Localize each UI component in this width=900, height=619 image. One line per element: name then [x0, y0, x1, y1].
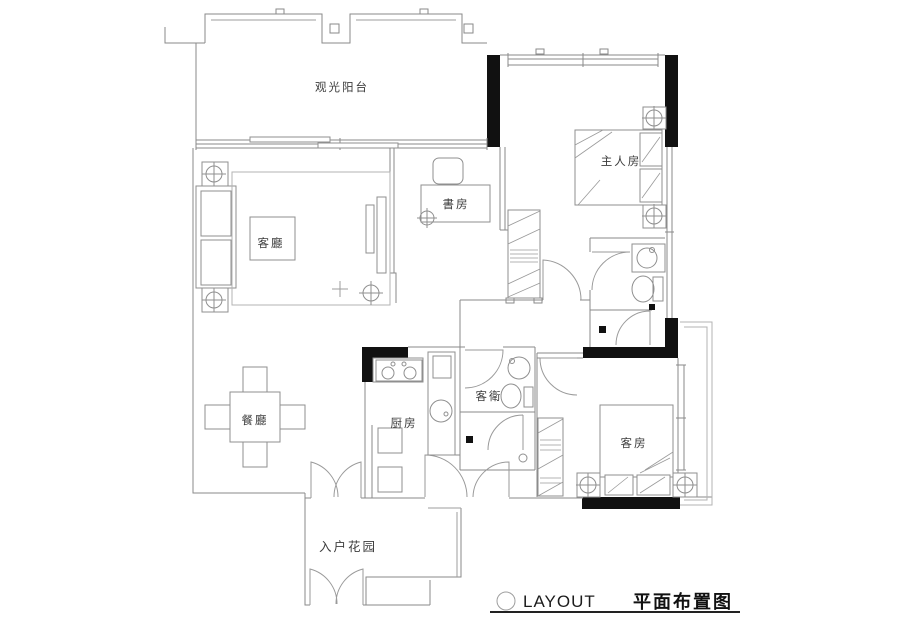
title-circle-icon	[497, 592, 515, 610]
master-bath-door	[592, 252, 630, 290]
guest-room-door	[540, 358, 577, 395]
master-shower-door	[616, 311, 650, 345]
label-entry-garden: 入户花园	[319, 539, 377, 554]
title-block: LAYOUT 平面布置图	[490, 591, 740, 612]
study-chair	[433, 158, 463, 184]
sofa	[196, 186, 236, 288]
dining-chair	[205, 405, 230, 429]
balcony-top-wall	[205, 14, 487, 43]
window-guestroom	[676, 365, 686, 470]
floor-plan-page: 观光阳台 主人房 書房 客廳 餐廳 厨房 客衛 客房 入户花园 LAYOUT 平…	[0, 0, 900, 619]
wall-bath-right	[665, 318, 678, 358]
kitchen-faucet	[444, 412, 448, 416]
label-study: 書房	[443, 197, 470, 211]
title-chinese: 平面布置图	[633, 591, 733, 612]
guest-shower-door	[488, 415, 523, 450]
balcony-tick	[420, 9, 428, 14]
burner	[382, 367, 394, 379]
gbath-box	[460, 347, 535, 470]
guestroom-top	[537, 353, 583, 358]
balcony-tick	[276, 9, 284, 14]
garden-step-inner	[428, 508, 461, 577]
kitchen-left-wall	[365, 382, 372, 498]
tv	[366, 205, 374, 253]
dining-chair	[243, 442, 267, 467]
label-dining-room: 餐廳	[242, 413, 269, 427]
wall-guestroom-bottom	[582, 497, 680, 509]
wall-master-left	[487, 55, 500, 147]
guest-bath-door	[465, 350, 503, 388]
guest-shower-head	[466, 436, 473, 443]
kitchen-chair	[378, 467, 402, 492]
burner-knob	[391, 362, 395, 366]
dining-chair	[280, 405, 305, 429]
label-guest-bathroom: 客衛	[476, 389, 503, 403]
label-master-bedroom: 主人房	[601, 155, 642, 168]
wall-master-right	[665, 55, 678, 147]
main-entry-door	[473, 462, 509, 497]
floor-plan-drawing: 观光阳台 主人房 書房 客廳 餐廳 厨房 客衛 客房 入户花园 LAYOUT 平…	[0, 0, 900, 619]
label-balcony: 观光阳台	[315, 80, 369, 94]
wall-bath-bottom	[583, 347, 678, 358]
guest-toilet-tank	[524, 387, 533, 407]
master-tick	[600, 49, 608, 54]
dining-chair	[243, 367, 267, 392]
shower-head	[599, 326, 606, 333]
burner-knob	[402, 362, 406, 366]
burner	[404, 367, 416, 379]
garden-south-door	[310, 569, 337, 605]
toilet	[632, 276, 654, 302]
light-symbol	[359, 281, 383, 305]
master-study-wall	[500, 147, 505, 230]
sliding-door-panel	[250, 137, 330, 142]
kitchen-sink	[430, 400, 452, 422]
garden-south-door	[336, 569, 363, 605]
master-east-wall	[665, 147, 674, 318]
drain	[649, 304, 655, 310]
kitchen-chair	[378, 428, 402, 453]
sliding-door-panel	[318, 143, 398, 148]
guest-toilet	[501, 384, 521, 408]
title-latin: LAYOUT	[523, 592, 596, 611]
cutting-board	[433, 356, 451, 378]
balcony-pillar	[464, 24, 473, 33]
guest-sink	[508, 357, 530, 379]
balcony-left-stub	[165, 27, 205, 43]
main-entry-door	[425, 455, 467, 497]
label-guest-bedroom: 客房	[621, 436, 648, 450]
balcony-pillar	[330, 24, 339, 33]
walls	[165, 9, 712, 605]
crosshair-mark	[332, 281, 348, 297]
wall-kitchen-left	[362, 347, 373, 382]
hall-mark	[519, 454, 527, 462]
tv-wall	[390, 148, 396, 303]
garden-step	[366, 508, 461, 605]
master-tick	[536, 49, 544, 54]
tv-cabinet	[377, 197, 386, 273]
label-living-room: 客廳	[258, 236, 285, 250]
master-suite-door	[543, 260, 581, 300]
label-kitchen: 厨房	[391, 417, 418, 430]
